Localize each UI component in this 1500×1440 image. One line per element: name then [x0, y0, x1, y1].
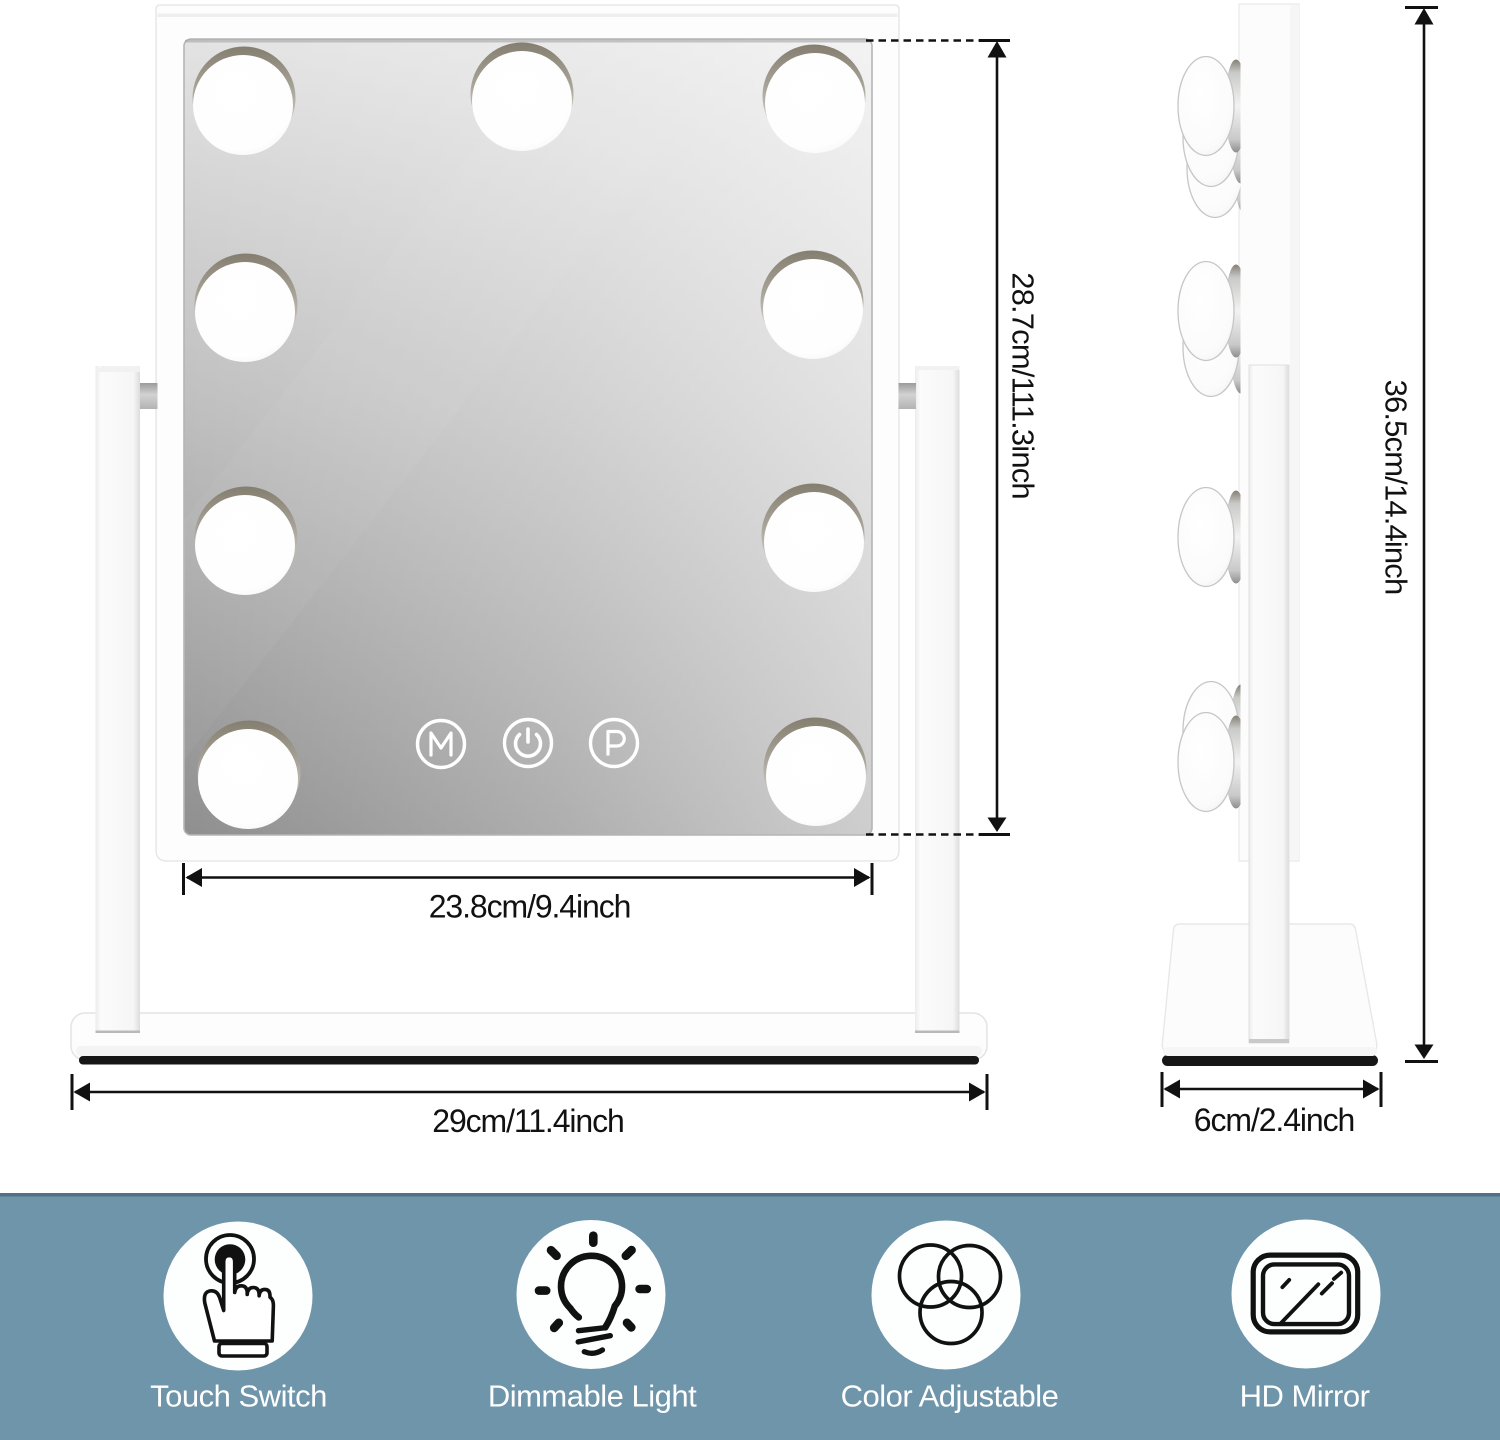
- svg-text:Dimmable Light: Dimmable Light: [488, 1379, 697, 1414]
- svg-text:Color Adjustable: Color Adjustable: [841, 1379, 1059, 1414]
- svg-text:29cm/11.4inch: 29cm/11.4inch: [432, 1103, 623, 1139]
- svg-text:28.7cm/111.3inch: 28.7cm/111.3inch: [1005, 272, 1040, 499]
- svg-text:6cm/2.4inch: 6cm/2.4inch: [1194, 1102, 1354, 1138]
- svg-text:Touch Switch: Touch Switch: [150, 1379, 327, 1414]
- svg-text:36.5cm/14.4inch: 36.5cm/14.4inch: [1378, 380, 1413, 595]
- svg-text:23.8cm/9.4inch: 23.8cm/9.4inch: [429, 889, 631, 925]
- svg-text:HD Mirror: HD Mirror: [1240, 1379, 1370, 1414]
